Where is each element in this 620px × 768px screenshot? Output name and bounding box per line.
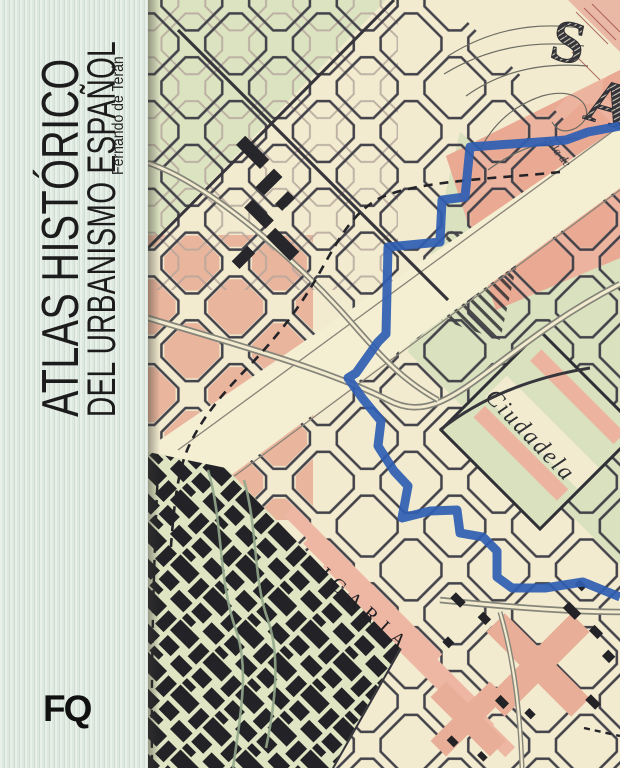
map-panel: S A cala de Ciudadela ICARIA — [148, 0, 620, 768]
publisher-logo: FQ — [43, 688, 90, 730]
map-artwork: S A cala de Ciudadela ICARIA — [148, 0, 620, 768]
book-cover: ATLAS HISTÓRICO DEL URBANISMO ESPAÑOL Fe… — [0, 0, 620, 768]
spine-band: ATLAS HISTÓRICO DEL URBANISMO ESPAÑOL Fe… — [0, 0, 148, 768]
cover-author: Fernando de Terán — [111, 56, 127, 175]
